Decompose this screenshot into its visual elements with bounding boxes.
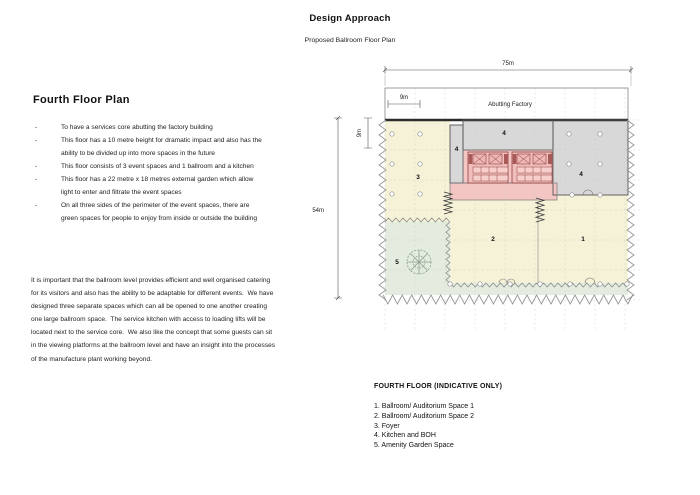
- dimension-bay-depth-9m: 9m: [357, 118, 372, 148]
- plan-legend: FOURTH FLOOR (INDICATIVE ONLY) 1. Ballro…: [374, 383, 502, 451]
- kitchen-top-region: [463, 120, 553, 150]
- label-kitchen-right: 4: [579, 171, 583, 178]
- label-foyer: 3: [416, 174, 420, 181]
- stair-block: [469, 154, 473, 164]
- dim-overall-depth: 54m: [312, 208, 324, 214]
- stair-block: [513, 154, 517, 164]
- label-kitchen-strip: 4: [455, 146, 459, 153]
- bullet-text: This floor has a 10 metre height for dra…: [61, 134, 267, 160]
- label-space-1: 1: [581, 236, 585, 243]
- dimension-depth-54m: 54m: [312, 116, 342, 300]
- label-garden: 5: [395, 259, 399, 266]
- bullet-text: On all three sides of the perimeter of t…: [61, 199, 267, 225]
- foyer-region: [385, 120, 450, 222]
- legend-item: 5. Amenity Garden Space: [374, 441, 502, 451]
- legend-item: 1. Ballroom/ Auditorium Space 1: [374, 402, 502, 412]
- dim-bay-depth: 9m: [357, 129, 363, 137]
- bullet-item: This floor consists of 3 event spaces an…: [35, 160, 267, 173]
- label-abutting-factory: Abutting Factory: [488, 102, 532, 108]
- presentation-slide: Design Approach Proposed Ballroom Floor …: [0, 0, 700, 495]
- bullet-item: This floor has a 10 metre height for dra…: [35, 134, 267, 160]
- body-paragraph: It is important that the ballroom level …: [31, 274, 276, 366]
- stair-block: [548, 154, 552, 164]
- legend-item: 2. Ballroom/ Auditorium Space 2: [374, 412, 502, 422]
- dimension-width-75m: 75m: [383, 61, 633, 86]
- bullet-list: To have a services core abutting the fac…: [35, 121, 267, 225]
- kitchen-right-region: [553, 120, 628, 195]
- legend-item: 3. Foyer: [374, 422, 502, 432]
- section-heading: Fourth Floor Plan: [33, 94, 130, 106]
- kitchen-strip-region: [450, 125, 463, 183]
- bullet-text: This floor consists of 3 event spaces an…: [61, 160, 254, 173]
- label-kitchen-top: 4: [502, 130, 506, 137]
- page-title: Design Approach: [0, 13, 700, 24]
- label-space-2: 2: [491, 236, 495, 243]
- bullet-item: On all three sides of the perimeter of t…: [35, 199, 267, 225]
- legend-title: FOURTH FLOOR (INDICATIVE ONLY): [374, 383, 502, 390]
- stair-block: [504, 154, 508, 164]
- legend-item: 4. Kitchen and BOH: [374, 431, 502, 441]
- bullet-text: To have a services core abutting the fac…: [61, 121, 213, 134]
- bullet-text: This floor has a 22 metre x 18 metres ex…: [61, 173, 267, 199]
- page-subtitle: Proposed Ballroom Floor Plan: [0, 37, 700, 44]
- bullet-item: This floor has a 22 metre x 18 metres ex…: [35, 173, 267, 199]
- tree-icon: [407, 250, 431, 274]
- floor-plan: 75m 54m 9m 9m Abutting Factory 1 2 3 4 4…: [280, 45, 660, 390]
- corridor-region: [450, 183, 557, 200]
- dim-overall-width: 75m: [502, 61, 514, 67]
- bullet-item: To have a services core abutting the fac…: [35, 121, 267, 134]
- dim-bay-width: 9m: [400, 95, 408, 101]
